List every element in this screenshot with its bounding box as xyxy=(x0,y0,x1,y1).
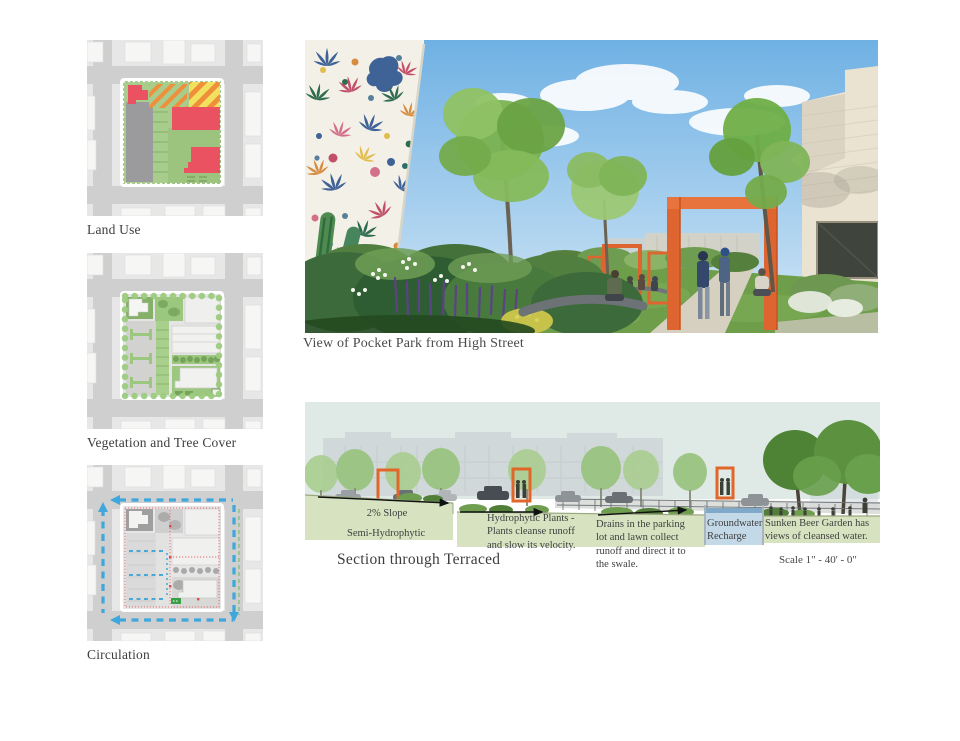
beer-garden-annotation: Sunken Beer Garden has views of cleansed… xyxy=(765,517,873,544)
circulation-label: Circulation xyxy=(87,647,263,663)
pocket-park-view xyxy=(305,40,878,333)
drains-annotation: Drains in the parking lot and lawn colle… xyxy=(596,518,696,572)
slope-annotation: 2% Slope xyxy=(352,507,422,520)
land-use-map-figure: Land Use xyxy=(87,40,263,238)
presentation-board: Land Use xyxy=(0,0,960,741)
semi-hydrophytic-annotation: Semi-Hydrophytic xyxy=(347,527,425,540)
perspective-caption: View of Pocket Park from High Street xyxy=(303,336,524,352)
scale-note: Scale 1" - 40' - 0" xyxy=(779,554,857,566)
vegetation-map-figure: Vegetation and Tree Cover xyxy=(87,253,263,451)
vegetation-label: Vegetation and Tree Cover xyxy=(87,435,263,451)
land-use-label: Land Use xyxy=(87,222,263,238)
groundwater-annotation: Groundwater Recharge xyxy=(707,517,767,544)
circulation-map-figure: Circulation xyxy=(87,465,263,663)
vegetation-map xyxy=(87,253,263,429)
perspective-render xyxy=(305,40,878,333)
hydrophytic-annotation: Hydrophytic Plants - Plants cleanse runo… xyxy=(487,512,585,552)
circulation-map xyxy=(87,465,263,641)
section-caption: Section through Terraced xyxy=(337,551,500,569)
land-use-map xyxy=(87,40,263,216)
